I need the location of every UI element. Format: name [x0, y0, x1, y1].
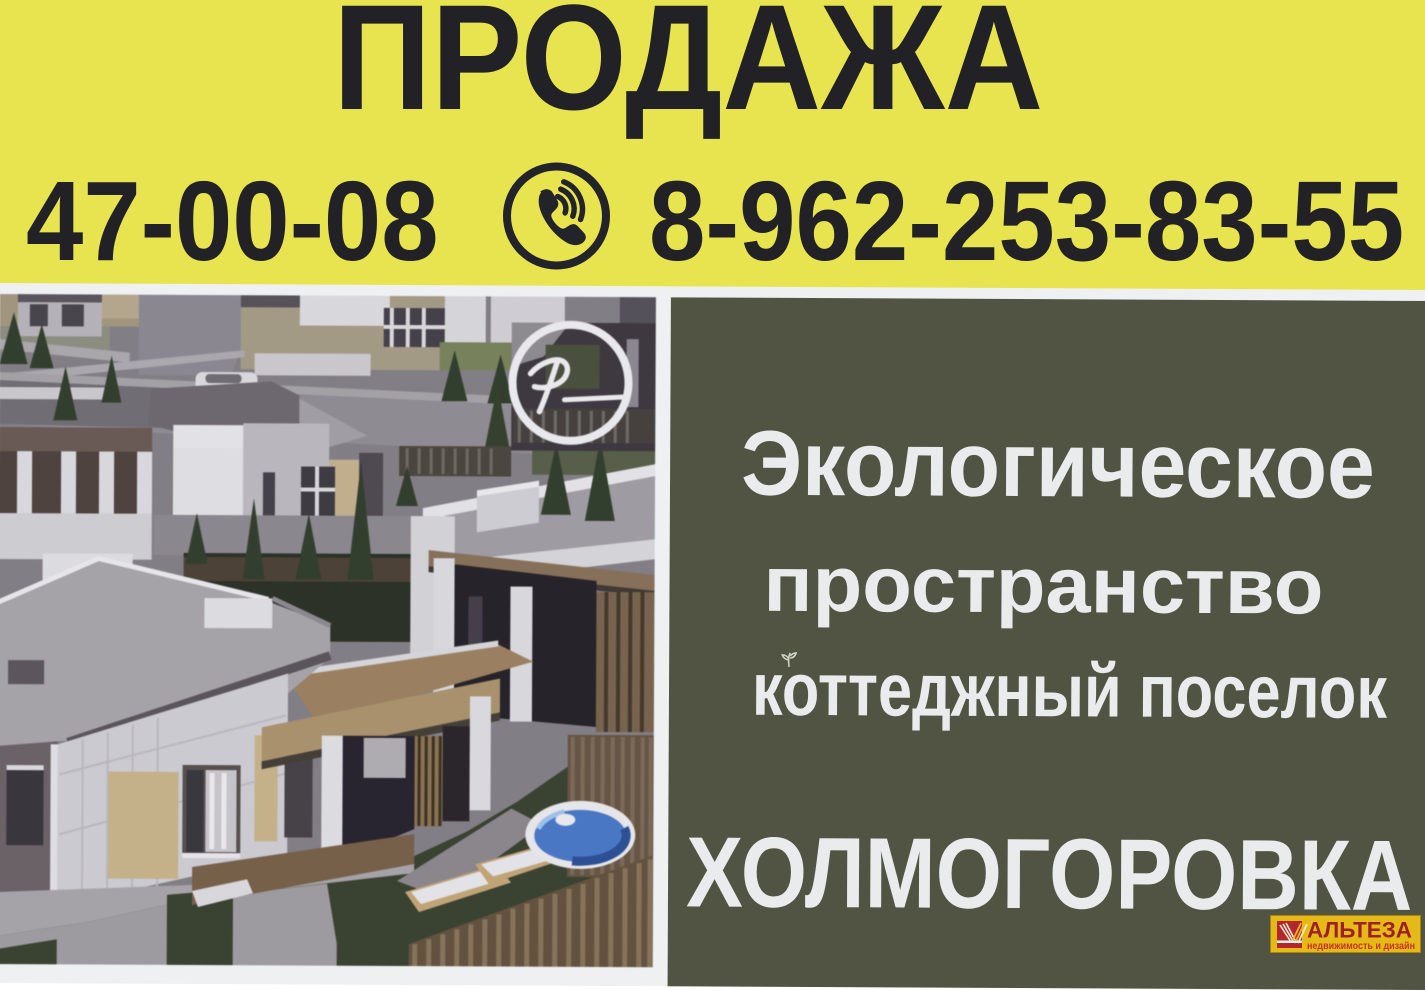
svg-text:АЛЬТЕЗА: АЛЬТЕЗА: [1307, 918, 1412, 943]
svg-text:недвижимость и дизайн: недвижимость и дизайн: [1307, 941, 1415, 952]
